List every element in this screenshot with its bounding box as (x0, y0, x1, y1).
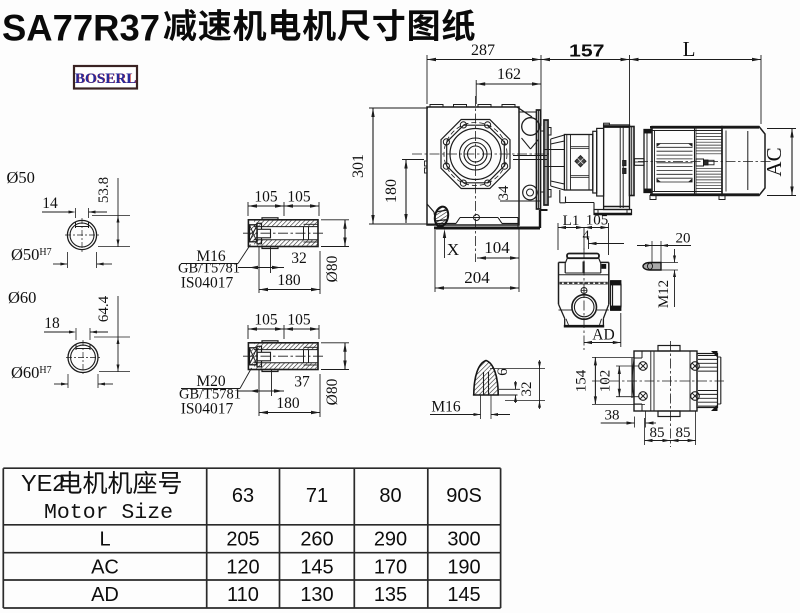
svg-text:AC: AC (91, 556, 119, 578)
svg-text:X: X (447, 240, 459, 259)
svg-text:260: 260 (300, 529, 333, 551)
svg-text:Ø80: Ø80 (324, 255, 341, 282)
svg-text:145: 145 (300, 556, 333, 578)
svg-text:Ø80: Ø80 (324, 378, 341, 405)
svg-text:M16: M16 (431, 399, 461, 416)
svg-text:145: 145 (447, 584, 480, 606)
svg-text:18: 18 (44, 315, 60, 332)
svg-text:M12: M12 (656, 280, 672, 308)
svg-text:180: 180 (383, 179, 400, 203)
svg-text:AD: AD (592, 327, 614, 344)
svg-text:204: 204 (464, 268, 490, 287)
svg-text:32: 32 (291, 250, 307, 267)
svg-text:80: 80 (379, 485, 401, 507)
svg-text:Ø50: Ø50 (7, 168, 35, 187)
svg-text:YE2: YE2 (21, 470, 65, 496)
svg-text:IS04017: IS04017 (181, 401, 234, 418)
svg-text:104: 104 (484, 238, 510, 257)
svg-text:180: 180 (276, 395, 300, 412)
svg-text:300: 300 (447, 529, 480, 551)
svg-text:IS04017: IS04017 (181, 275, 234, 292)
svg-text:AD: AD (91, 584, 119, 606)
svg-text:110: 110 (227, 584, 259, 606)
svg-text:71: 71 (306, 485, 328, 507)
svg-text:38: 38 (605, 408, 620, 424)
svg-text:190: 190 (447, 556, 480, 578)
svg-text:170: 170 (374, 556, 407, 578)
svg-text:85: 85 (676, 425, 691, 441)
svg-text:130: 130 (300, 584, 333, 606)
svg-text:205: 205 (226, 529, 259, 551)
svg-text:63: 63 (232, 485, 254, 507)
svg-text:20: 20 (676, 231, 691, 247)
svg-text:L: L (683, 37, 696, 61)
svg-text:64.4: 64.4 (96, 295, 112, 322)
svg-text:90S: 90S (446, 485, 482, 507)
svg-text:Motor Size: Motor Size (44, 501, 173, 525)
svg-text:Ø60: Ø60 (8, 288, 36, 307)
svg-text:L1: L1 (563, 213, 580, 229)
svg-text:162: 162 (497, 66, 521, 83)
svg-text:34: 34 (496, 185, 512, 201)
svg-text:180: 180 (277, 272, 301, 289)
svg-text:102: 102 (598, 370, 614, 393)
svg-text:105: 105 (254, 189, 278, 206)
svg-text:105: 105 (287, 189, 311, 206)
svg-text:287: 287 (471, 42, 495, 59)
svg-text:120: 120 (226, 556, 259, 578)
svg-text:105: 105 (254, 312, 278, 329)
svg-text:32: 32 (519, 382, 535, 397)
svg-text:301: 301 (350, 154, 367, 178)
svg-text:L: L (99, 529, 110, 551)
svg-text:4: 4 (583, 229, 590, 244)
svg-text:SA77R37: SA77R37 (2, 8, 160, 49)
svg-text:290: 290 (374, 529, 407, 551)
svg-text:157: 157 (569, 41, 605, 61)
svg-text:105: 105 (586, 213, 609, 229)
svg-text:85: 85 (650, 425, 665, 441)
svg-text:BOSERL: BOSERL (75, 70, 137, 87)
svg-text:135: 135 (374, 584, 407, 606)
svg-text:14: 14 (42, 195, 58, 212)
svg-text:105: 105 (287, 312, 311, 329)
svg-text:37: 37 (294, 374, 310, 391)
svg-text:53.8: 53.8 (96, 177, 112, 203)
svg-text:154: 154 (574, 369, 590, 392)
